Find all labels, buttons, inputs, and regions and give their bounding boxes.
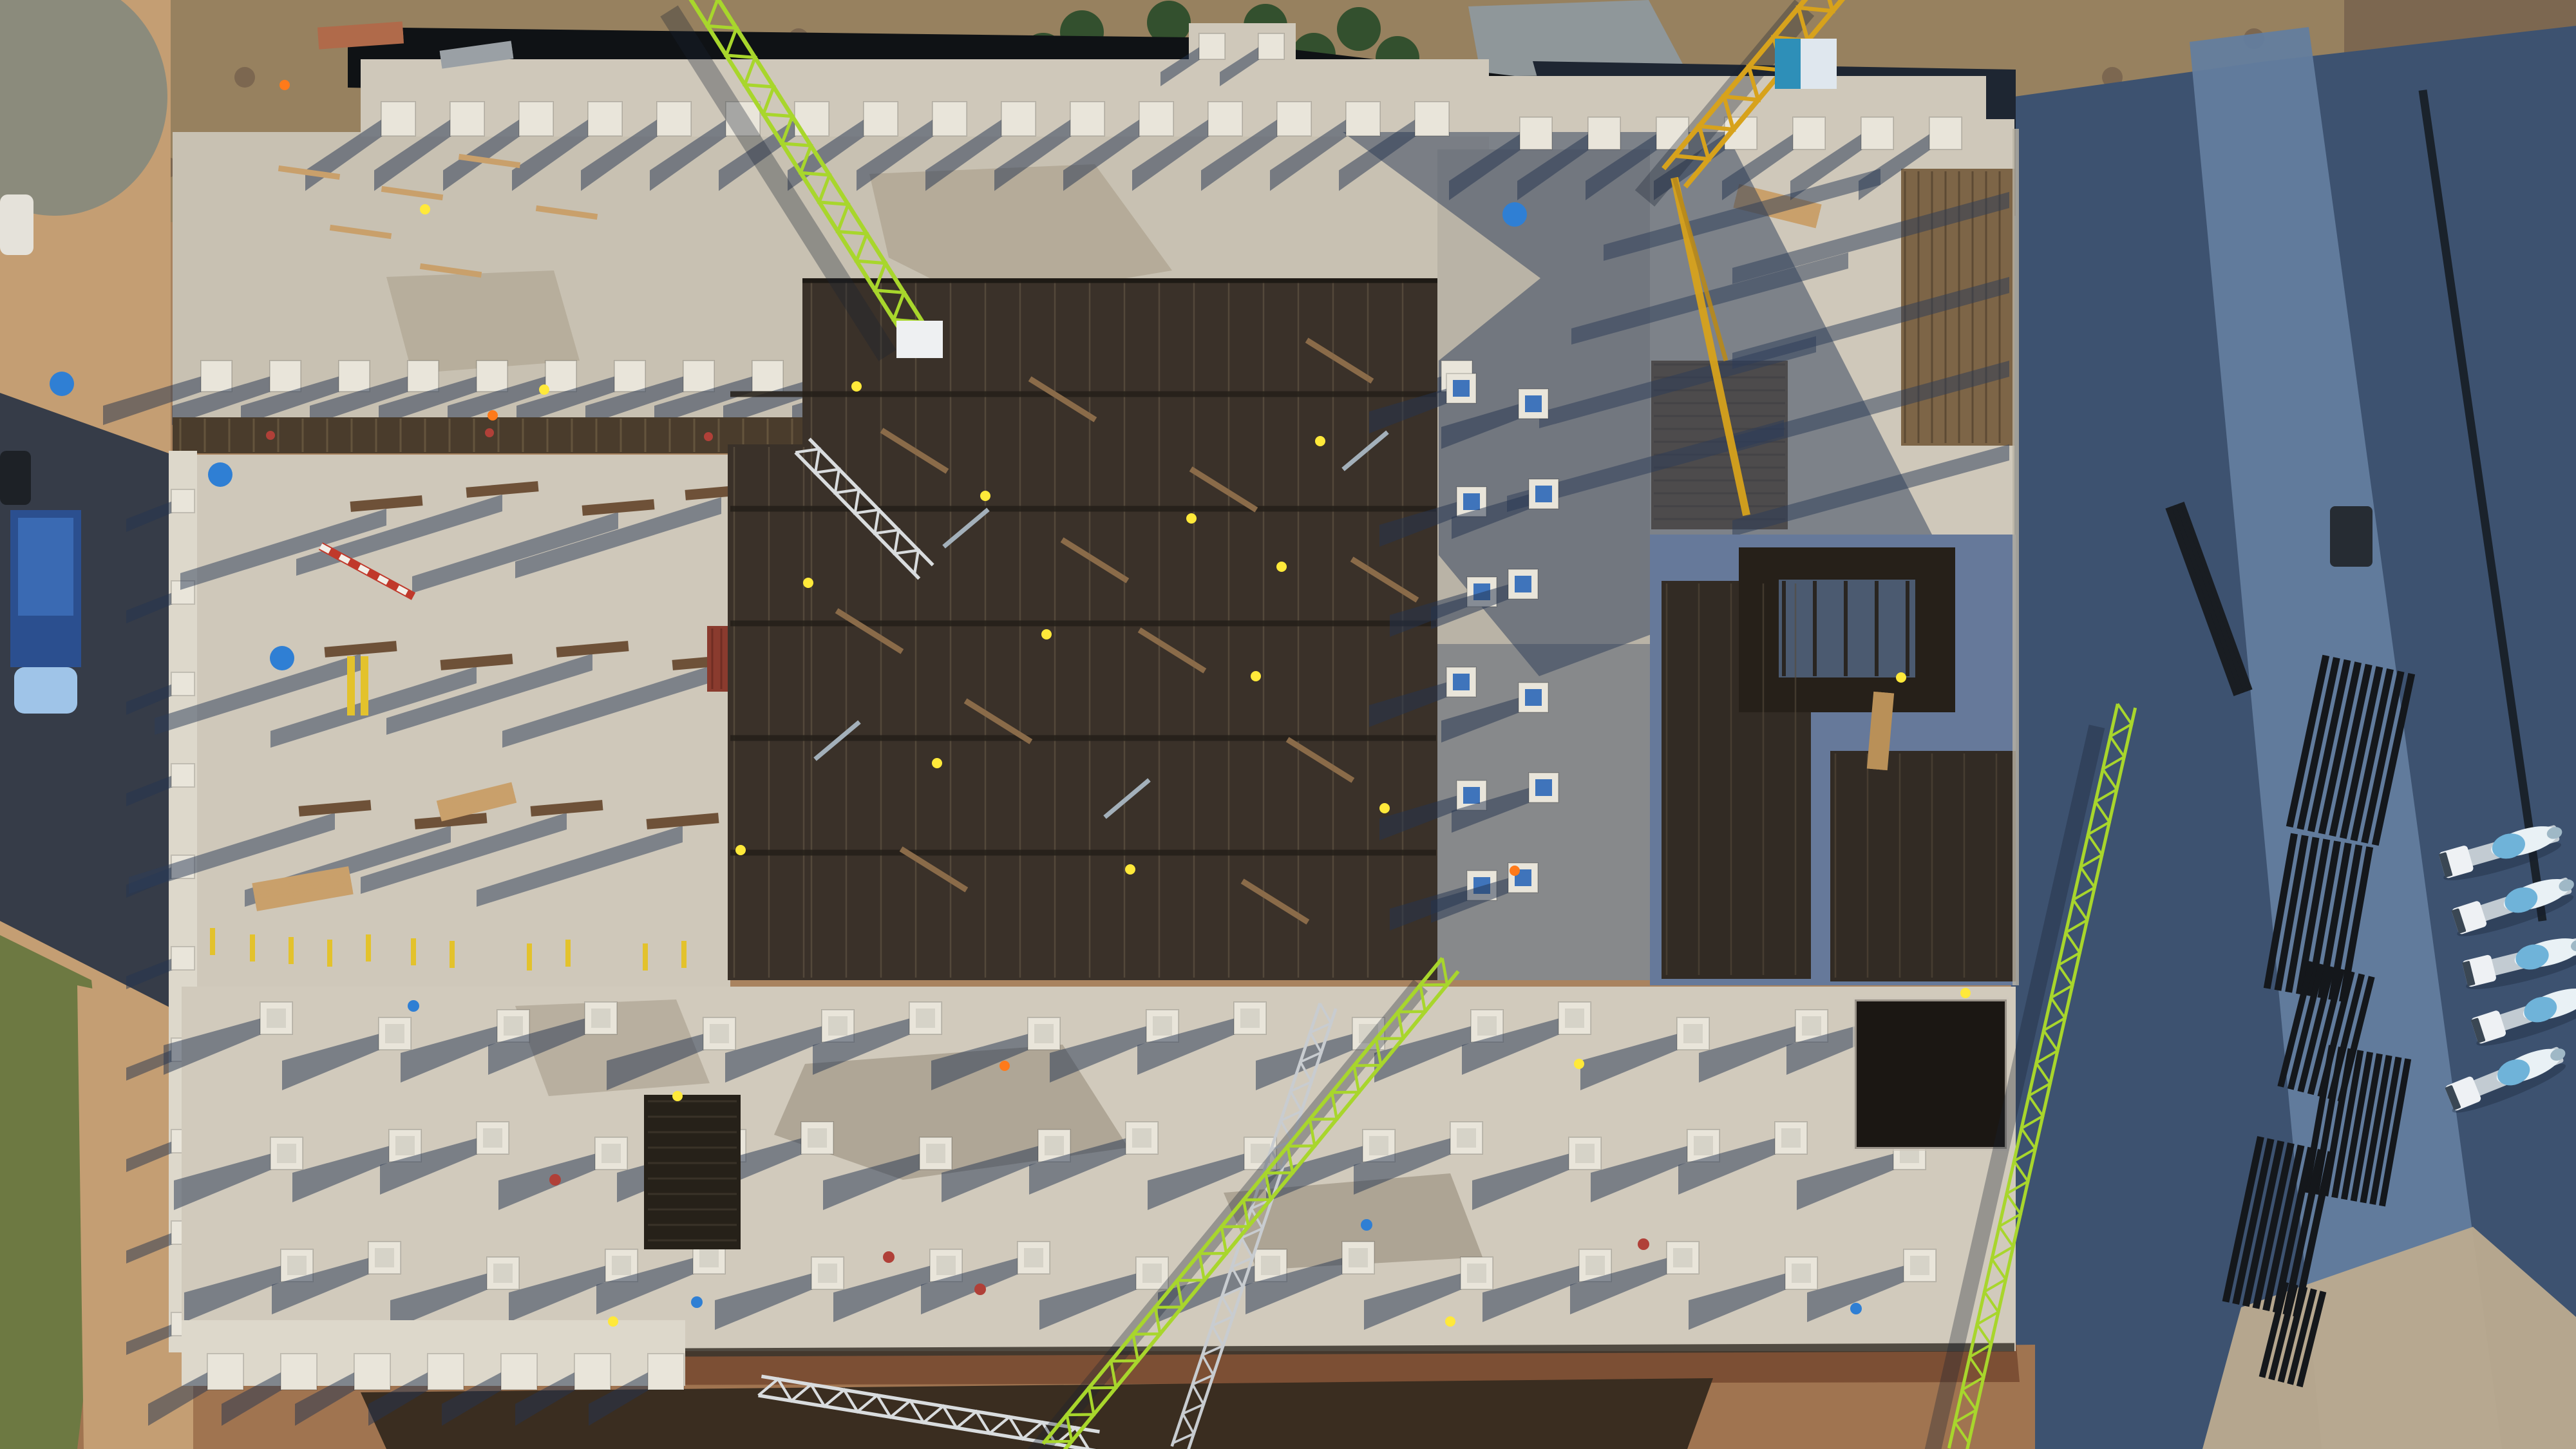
- yellow-crane-cab-blue: [1775, 39, 1801, 89]
- crane-boom-top-head: [896, 321, 943, 358]
- apron-wet-patch-2: [386, 270, 580, 374]
- road-vehicle: [2330, 506, 2372, 567]
- dark-suv: [0, 451, 31, 505]
- south-edge-line: [685, 1347, 2014, 1352]
- formwork-deck: [728, 278, 1437, 980]
- slab-dark-hole: [1855, 999, 2007, 1149]
- rm-formwork-2: [1830, 751, 2016, 981]
- aerial-construction-photo: Aerial top-down drone photograph of a la…: [0, 0, 2576, 1449]
- blue-truck-cab: [14, 667, 77, 714]
- construction-site-scene: [0, 0, 2576, 1449]
- white-car: [0, 194, 33, 255]
- slab-dark-box: [644, 1095, 741, 1249]
- blue-truck-cargo: [18, 518, 73, 616]
